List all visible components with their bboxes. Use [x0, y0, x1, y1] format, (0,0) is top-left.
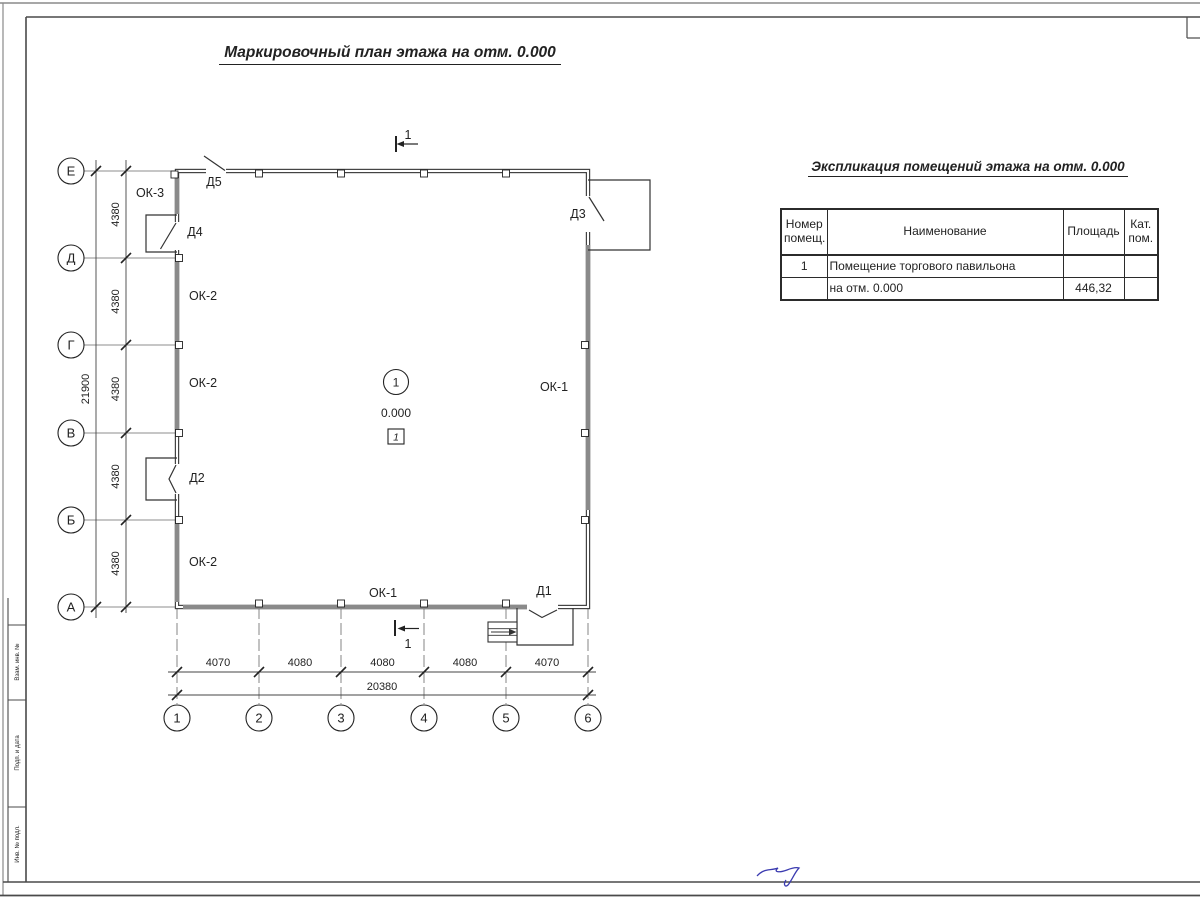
explication-title: Экспликация помещений этажа на отм. 0.00…	[788, 158, 1148, 177]
room-elevation: 0.000	[381, 406, 411, 420]
door-d1-porch	[517, 608, 573, 645]
explication-panel: Номер помещ. Наименование Площадь Кат. п…	[780, 208, 1159, 301]
window-bands	[175, 178, 590, 609]
dimension-label: 4080	[288, 657, 312, 669]
col-header-name: Наименование	[827, 209, 1063, 255]
axis-label: Б	[67, 513, 76, 528]
walls	[177, 171, 588, 607]
drawing-title-text: Маркировочный план этажа на отм. 0.000	[219, 44, 561, 65]
stamp-column-labels: Взам. инв. № Подп. и дата Инв. № подл.	[14, 643, 21, 862]
axis-label: 5	[502, 711, 509, 726]
axis-bubble-row-1: Д	[58, 245, 84, 271]
cell-area: 446,32	[1063, 278, 1124, 301]
axis-bubble-row-3: В	[58, 420, 84, 446]
col-header-number: Номер помещ.	[781, 209, 827, 255]
plan-label: Д3	[570, 207, 585, 221]
plan-label: ОК-3	[136, 186, 164, 200]
plan-label: ОК-1	[540, 380, 568, 394]
signature-scribble	[757, 868, 799, 886]
axis-label: 1	[173, 711, 180, 726]
plan-label: ОК-2	[189, 289, 217, 303]
axis-label: А	[67, 600, 76, 615]
section-mark-bottom	[395, 620, 419, 636]
axis-bubble-col-1: 2	[246, 705, 272, 731]
axis-label: 3	[337, 711, 344, 726]
plan-label: Д1	[536, 584, 551, 598]
plan-label: 1	[405, 637, 412, 651]
dimension-label: 4070	[535, 657, 559, 669]
stamp-label: Инв. № подл.	[14, 825, 21, 863]
axis-bubble-col-3: 4	[411, 705, 437, 731]
axis-label: 2	[255, 711, 262, 726]
plan-label: Д2	[189, 471, 204, 485]
cell-category	[1124, 278, 1158, 301]
room-category: 1	[393, 432, 399, 444]
dimension-label: 4380	[110, 377, 122, 401]
plan-label: ОК-2	[189, 555, 217, 569]
axis-label: Г	[67, 338, 74, 353]
axis-bubble-row-5: А	[58, 594, 84, 620]
door-d3-porch	[588, 180, 650, 250]
dimension-label: 21900	[80, 374, 92, 405]
window-ok3	[175, 178, 179, 214]
dimension-label: 4380	[110, 202, 122, 226]
dimension-label: 4380	[110, 464, 122, 488]
column-markers	[171, 170, 589, 607]
dimension-label: 20380	[367, 681, 398, 693]
drawing-sheet: Взам. инв. № Подп. и дата Инв. № подл.	[0, 0, 1200, 900]
steps-symbol	[488, 622, 517, 642]
plan-label: Д4	[187, 225, 202, 239]
dimension-label: 4080	[453, 657, 477, 669]
drawing-title: Маркировочный план этажа на отм. 0.000	[170, 44, 610, 65]
explication-title-text: Экспликация помещений этажа на отм. 0.00…	[808, 159, 1127, 177]
dimension-label: 4380	[110, 551, 122, 575]
cell-number	[781, 278, 827, 301]
axis-label: Д	[67, 251, 76, 266]
sheet-frame	[0, 3, 1200, 896]
table-row: 1 Помещение торгового павильона	[781, 255, 1158, 278]
stamp-label: Подп. и дата	[15, 735, 21, 771]
stamp-label: Взам. инв. №	[14, 643, 21, 680]
window-ok2	[175, 262, 179, 341]
room-marker: 1 0.000 1	[381, 370, 411, 445]
axis-bubble-row-4: Б	[58, 507, 84, 533]
cell-name: Помещение торгового павильона	[827, 255, 1063, 278]
axis-bubble-col-2: 3	[328, 705, 354, 731]
door-openings	[171, 166, 594, 613]
floor-plan: 1 0.000 1 438040704380408043804080438040…	[58, 128, 650, 731]
plan-label: 1	[405, 128, 412, 142]
axis-bubble-row-0: Е	[58, 158, 84, 184]
explication-table: Номер помещ. Наименование Площадь Кат. п…	[780, 208, 1159, 301]
window-ok1-bottom	[183, 605, 527, 609]
plan-label: ОК-1	[369, 586, 397, 600]
window-ok1-right	[586, 245, 590, 510]
cell-number: 1	[781, 255, 827, 278]
axis-bubble-row-2: Г	[58, 332, 84, 358]
cell-area	[1063, 255, 1124, 278]
room-number: 1	[393, 376, 400, 390]
axis-label: Е	[67, 164, 76, 179]
axis-label: 6	[584, 711, 591, 726]
cell-name: на отм. 0.000	[827, 278, 1063, 301]
window-ok2	[175, 349, 179, 429]
window-ok2	[175, 524, 179, 602]
dimension-label: 4380	[110, 289, 122, 313]
axis-bubble-col-5: 6	[575, 705, 601, 731]
axis-bubble-col-4: 5	[493, 705, 519, 731]
plan-label: Д5	[206, 175, 221, 189]
corner-doc-box	[1187, 17, 1200, 38]
axis-label: 4	[420, 711, 427, 726]
doors	[146, 156, 650, 645]
axis-label: В	[67, 426, 76, 441]
cell-category	[1124, 255, 1158, 278]
dimension-label: 4080	[370, 657, 394, 669]
plan-label: ОК-2	[189, 376, 217, 390]
col-header-category: Кат. пом.	[1124, 209, 1158, 255]
axis-bubble-col-0: 1	[164, 705, 190, 731]
table-row: на отм. 0.000 446,32	[781, 278, 1158, 301]
table-header-row: Номер помещ. Наименование Площадь Кат. п…	[781, 209, 1158, 255]
dimension-label: 4070	[206, 657, 230, 669]
col-header-area: Площадь	[1063, 209, 1124, 255]
